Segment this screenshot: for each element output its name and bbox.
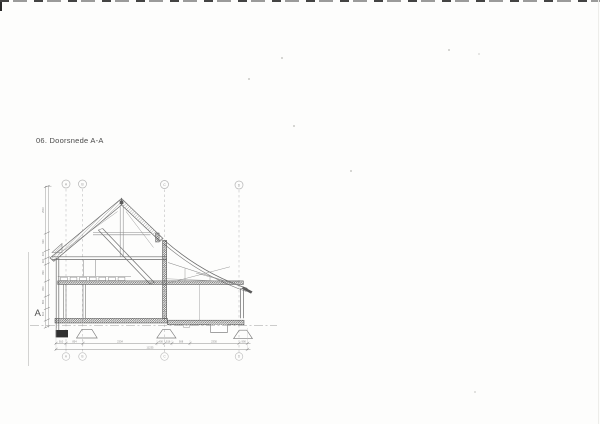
slab-recess	[211, 325, 228, 333]
grid-bubbles-top	[62, 180, 243, 189]
ground-foundations	[30, 318, 277, 338]
dimension-vertical: 2510 930 400 300 890 800 660 610	[41, 185, 52, 328]
dim-value: 890	[41, 270, 45, 275]
floor-beam-band	[58, 281, 244, 285]
floor-slab-left	[55, 318, 168, 323]
dim-value: 2330	[211, 339, 217, 343]
section-drawing: A B C D A B C D	[0, 0, 600, 424]
dim-value: 516	[166, 339, 171, 343]
grid-label: D	[238, 183, 241, 187]
dim-values-vertical: 2510 930 400 300 890 800 660 610	[41, 207, 45, 317]
dim-value: 660	[41, 299, 45, 304]
grid-bubbles-bottom	[62, 353, 243, 361]
dim-value: 2334	[117, 339, 123, 343]
grid-label: A	[65, 355, 68, 359]
dim-value: 990	[242, 339, 247, 343]
walls	[56, 241, 246, 331]
tie-beam	[52, 257, 167, 260]
dim-value: 800	[41, 286, 45, 291]
grid-label: A	[65, 182, 68, 186]
grid-labels-top: A B C D	[65, 182, 241, 187]
dim-value: 908	[179, 339, 184, 343]
grid-labels-bottom: A B C D	[65, 355, 241, 359]
dim-values: 910 854 2334 400 516 908 2330 990	[59, 339, 247, 343]
floor-joists	[61, 277, 125, 280]
scanned-drawing-page: 06. Doorsnede A-A A B C D	[0, 0, 600, 424]
stair-flight	[98, 229, 154, 285]
dim-value: 2510	[41, 207, 45, 213]
footing-b	[77, 329, 98, 338]
grid-label: C	[163, 355, 166, 359]
section-marker-label: A	[35, 308, 42, 319]
dim-value: 400	[159, 339, 164, 343]
grid-label: D	[238, 355, 241, 359]
ridge-purlin	[120, 201, 124, 205]
dim-value: 400	[41, 251, 45, 256]
eave-bracket-left	[52, 244, 62, 253]
slab-notch	[184, 325, 190, 328]
dim-value: 300	[41, 258, 45, 263]
dim-value: 910	[59, 339, 64, 343]
dim-value: 930	[41, 239, 45, 244]
dim-total-value: 11235	[146, 345, 154, 349]
grid-label: B	[81, 355, 83, 359]
foundation-block-left	[56, 330, 68, 337]
purlin-block-right	[156, 233, 160, 242]
footing-c	[157, 330, 176, 338]
dim-value: 610	[41, 311, 45, 316]
floor-slab-right	[168, 320, 245, 325]
grid-label: C	[163, 183, 166, 187]
grid-label: B	[81, 182, 84, 186]
dim-value: 854	[72, 339, 77, 343]
footing-d	[234, 330, 253, 338]
floor-structure	[58, 276, 244, 284]
wall-grid-c	[163, 241, 167, 319]
